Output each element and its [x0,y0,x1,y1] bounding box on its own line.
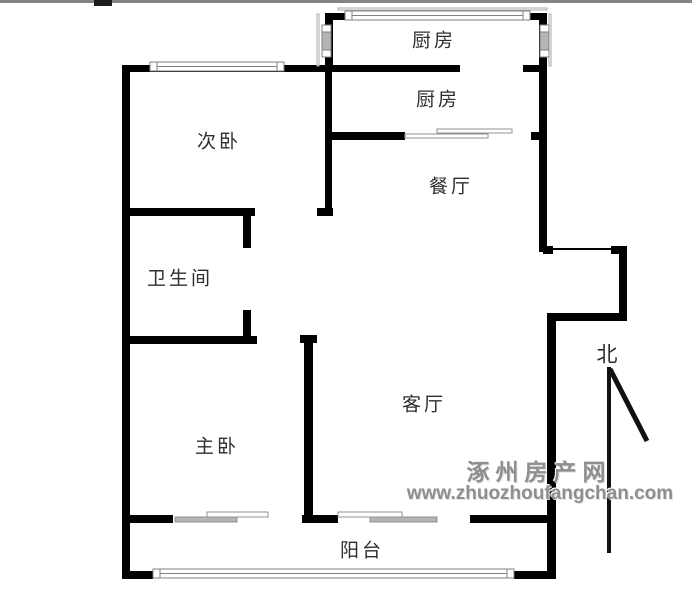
watermark-site-url: www.zhuozhoufangchan.com [407,483,673,505]
north-arrow-icon [607,367,647,553]
room-label-kitchen-balcony: 厨房 [412,32,456,51]
room-label-kitchen: 厨房 [416,91,460,110]
watermark-site-name: 涿州房产网 [467,453,612,487]
room-label-second-bedroom: 次卧 [197,133,241,152]
room-label-bathroom: 卫生间 [147,270,213,289]
floorplan-image: 厨房 厨房 餐厅 次卧 卫生间 客厅 主卧 阳台 北 涿州房产网 www.zhu… [0,0,692,600]
room-label-dining: 餐厅 [429,178,473,197]
room-label-living-room: 客厅 [402,396,446,415]
floorplan-drawing [0,0,692,600]
room-label-master-bedroom: 主卧 [195,438,239,457]
room-label-balcony: 阳台 [340,542,384,561]
north-label: 北 [597,345,618,366]
top-border-line [0,0,692,6]
